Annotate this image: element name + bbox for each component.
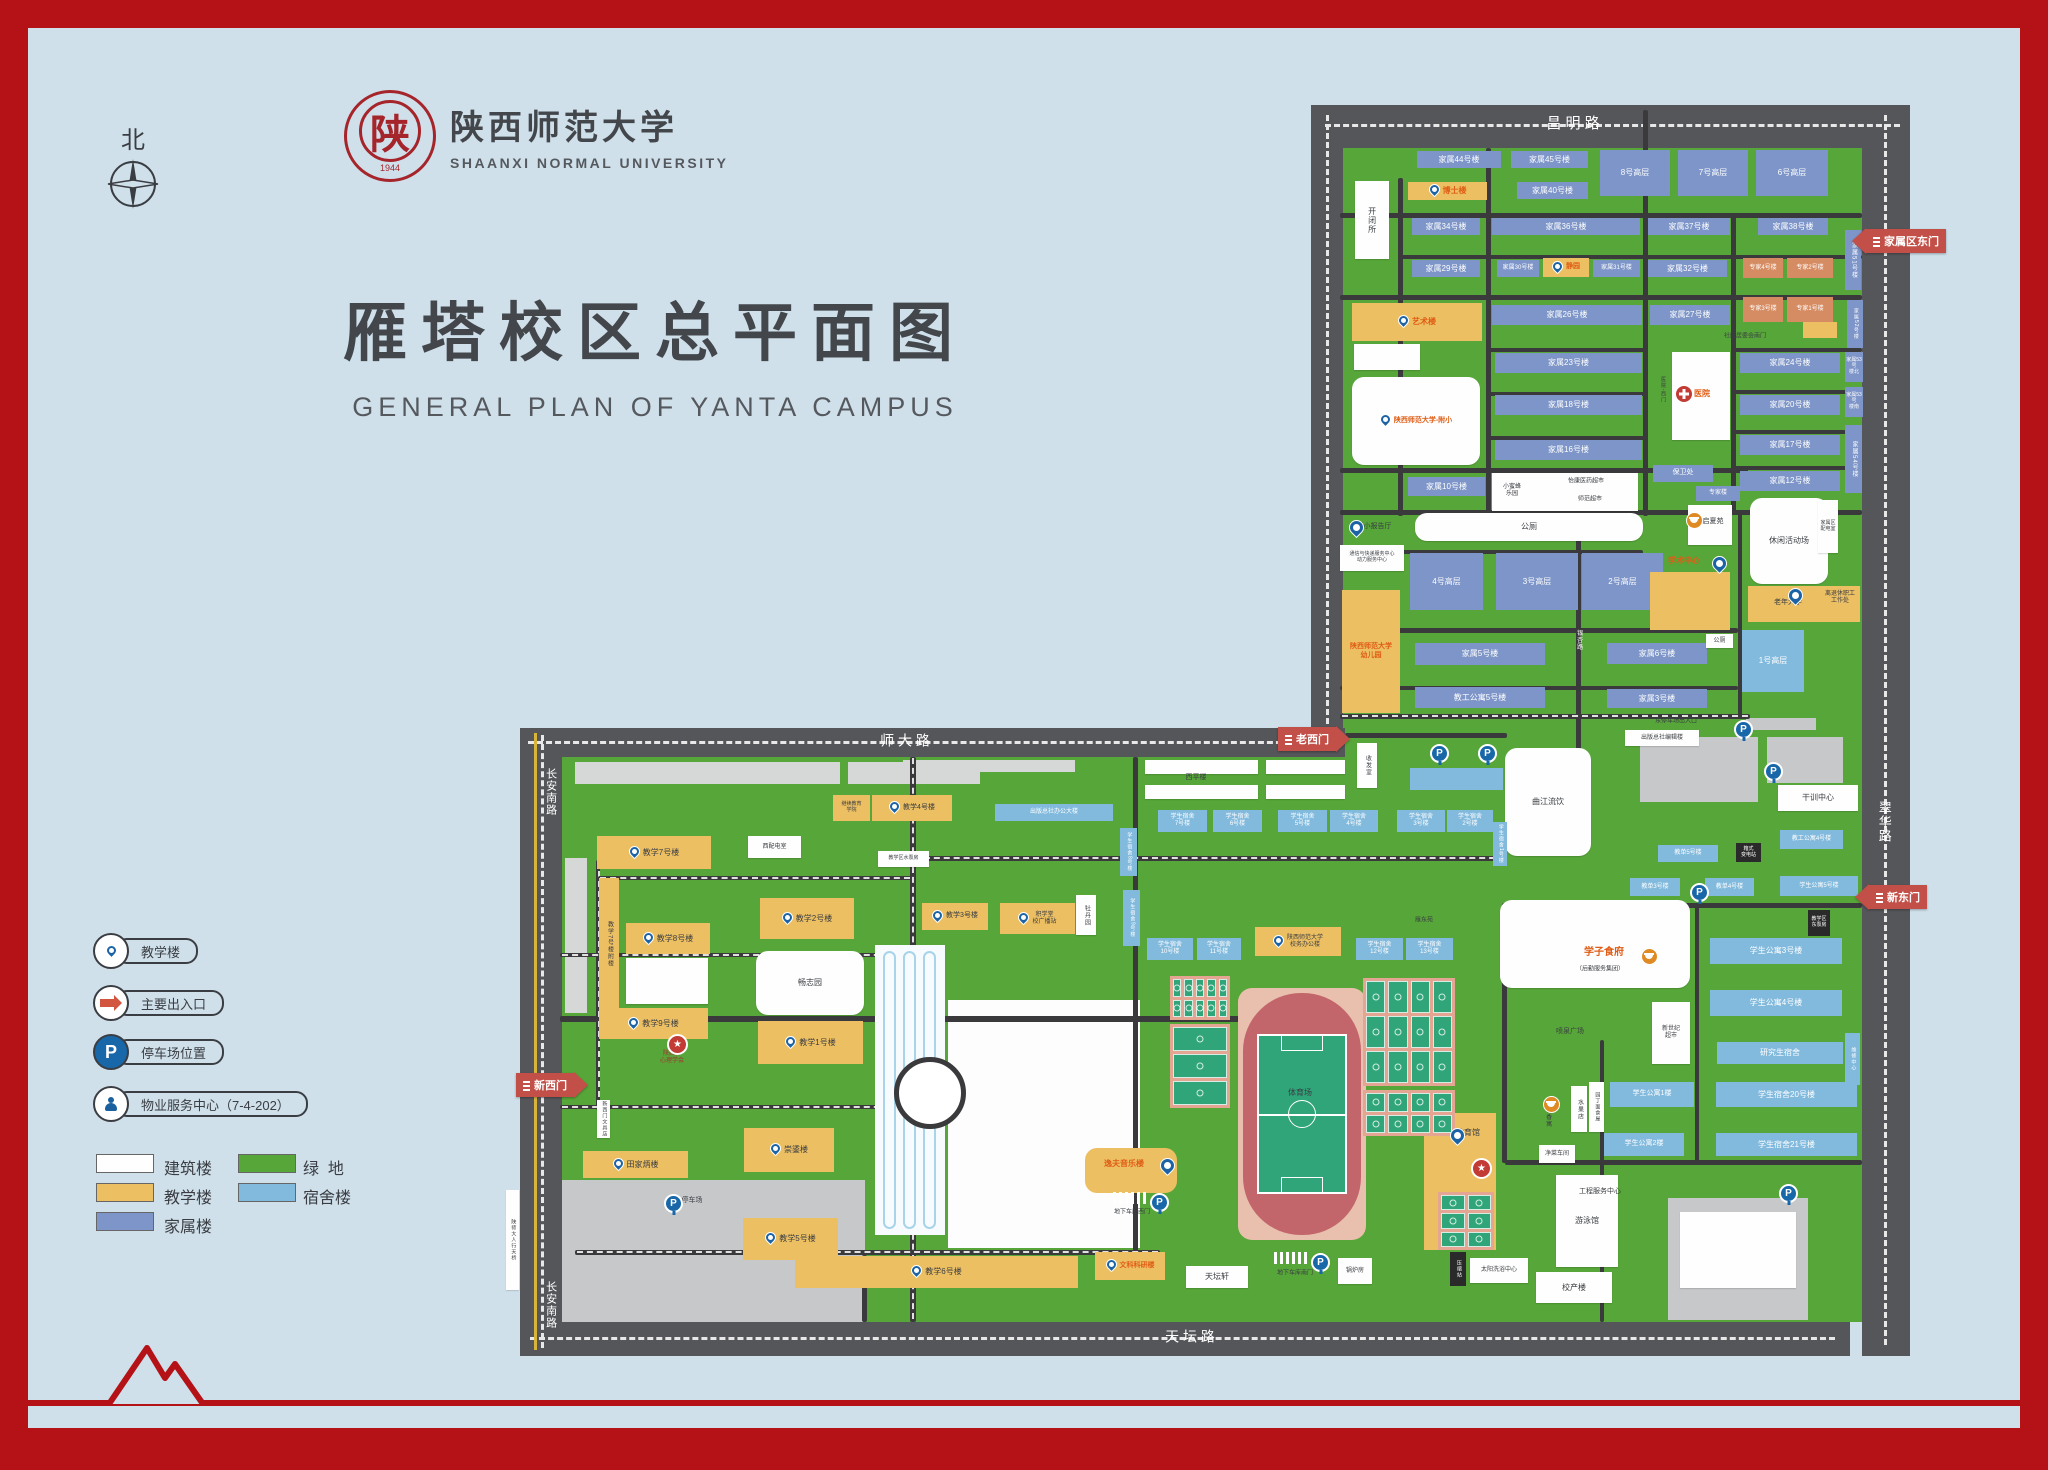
parking-icon: P bbox=[664, 1194, 683, 1213]
gate-icon bbox=[1285, 733, 1292, 745]
building: 园丁面食屋 bbox=[1589, 1082, 1604, 1132]
building: 教学2号楼 bbox=[760, 898, 854, 939]
accent-line bbox=[28, 1400, 2020, 1406]
building: 家属10号楼 bbox=[1408, 477, 1485, 496]
building: 学生宿舍 10号楼 bbox=[1147, 938, 1193, 960]
legend-item-parking: P 停车场位置 bbox=[93, 1034, 224, 1070]
legend-item-label: 主要出入口 bbox=[115, 990, 224, 1016]
building: 压缩站 bbox=[1450, 1252, 1466, 1286]
building: 专家楼 bbox=[1696, 486, 1740, 501]
map-label: 工程服务中心 bbox=[1579, 1188, 1621, 1196]
inner-road-dashes bbox=[577, 1251, 1158, 1253]
location-pin-icon bbox=[626, 843, 642, 859]
legend-item-property: 物业服务中心（7-4-202） bbox=[93, 1086, 308, 1122]
inner-road bbox=[1731, 390, 1862, 394]
building: 文科科研楼 bbox=[1095, 1252, 1165, 1280]
building bbox=[1410, 768, 1503, 790]
building: 教学7号楼附楼 bbox=[599, 878, 619, 1011]
star-badge-icon: ★ bbox=[1471, 1158, 1492, 1179]
road-centerline bbox=[541, 735, 544, 1348]
location-pin-icon bbox=[1103, 1257, 1119, 1273]
map-label: 银杏路 bbox=[1574, 630, 1581, 651]
sports-courts bbox=[1363, 1090, 1455, 1136]
building: 家属54号楼 bbox=[1845, 425, 1862, 493]
university-logo: 陕 1944 陕西师范大学 SHAANXI NORMAL UNIVERSITY bbox=[344, 90, 728, 182]
building: 学生宿舍 13号楼 bbox=[1406, 938, 1453, 960]
location-pin-icon bbox=[763, 1230, 779, 1246]
building: 教学7号楼 bbox=[597, 836, 711, 869]
sports-courts bbox=[1170, 976, 1230, 1020]
building: 7号高层 bbox=[1678, 150, 1748, 196]
building: 家属34号楼 bbox=[1412, 218, 1480, 235]
map-label: 社区居委会南门 bbox=[1724, 333, 1766, 340]
hospital-cross-icon bbox=[1676, 386, 1692, 402]
sidewalk bbox=[903, 760, 1075, 772]
building bbox=[1354, 344, 1420, 370]
building: 家属24号楼 bbox=[1740, 353, 1840, 373]
swatch-label: 宿舍楼 bbox=[303, 1184, 351, 1208]
building: 教学4号楼 bbox=[872, 795, 952, 821]
map-label: 学术中心 bbox=[1668, 556, 1700, 566]
building: 家属12号楼 bbox=[1740, 471, 1840, 491]
location-pin-icon bbox=[610, 1155, 626, 1171]
restaurant-icon bbox=[1641, 948, 1658, 965]
building: 1号高层 bbox=[1742, 630, 1804, 692]
building: 静园 bbox=[1543, 258, 1589, 277]
frame-right bbox=[2020, 0, 2048, 1470]
map-label: 昌 明 路 bbox=[1546, 115, 1599, 133]
building: 出版总社办公大楼 bbox=[995, 804, 1113, 821]
building: 陕师大人行天桥 bbox=[506, 1190, 519, 1290]
location-pin-icon bbox=[887, 799, 903, 815]
building: 家属5号楼 bbox=[1415, 643, 1545, 665]
building: 专家3号楼 bbox=[1743, 297, 1783, 322]
north-compass-icon bbox=[104, 155, 162, 213]
building: 家属53号 楼南 bbox=[1845, 387, 1863, 417]
swatch-building bbox=[96, 1154, 154, 1173]
location-pin-icon bbox=[1378, 412, 1394, 428]
building: 学生宿舍 3号楼 bbox=[1397, 810, 1445, 832]
building: 教工公寓5号楼 bbox=[1415, 687, 1545, 708]
building: 陕西师范大学 校务办公楼 bbox=[1255, 927, 1341, 956]
location-pin-icon bbox=[909, 1263, 925, 1279]
map-label: 雁东苑 bbox=[1415, 917, 1433, 924]
building: 教学1号楼 bbox=[758, 1021, 863, 1064]
building: 家属37号楼 bbox=[1648, 218, 1730, 235]
road-centerline bbox=[1325, 124, 1900, 127]
map-label: 离退休职工 工作处 bbox=[1825, 591, 1855, 605]
building: 教学3号楼 bbox=[922, 903, 988, 930]
parking-icon: P bbox=[1478, 744, 1497, 763]
building: 畅志园 bbox=[756, 951, 864, 1015]
restaurant-icon bbox=[1543, 1096, 1560, 1113]
building: 家属23号楼 bbox=[1495, 353, 1642, 373]
inner-road bbox=[1486, 148, 1491, 516]
map-label: 东停车场出入口 bbox=[1655, 718, 1697, 725]
location-pin-icon bbox=[768, 1141, 784, 1157]
north-label: 北 bbox=[98, 120, 168, 155]
building: 学生宿舍 12号楼 bbox=[1356, 938, 1403, 960]
map-label: 启夏苑 bbox=[1703, 518, 1724, 526]
building: 家属30号楼 bbox=[1497, 260, 1539, 277]
building: 公厕 bbox=[1415, 513, 1643, 541]
campus-map: 开闭所家属44号楼家属45号楼8号高层7号高层6号高层博士楼家属40号楼家属34… bbox=[0, 0, 2048, 1470]
plaza bbox=[948, 1000, 1140, 1248]
map-label: 长安南路 bbox=[543, 768, 556, 816]
building: 教学9号楼 bbox=[599, 1008, 708, 1039]
building: 家属27号楼 bbox=[1650, 305, 1730, 325]
building: 教学区 东泵房 bbox=[1808, 910, 1830, 936]
building: 锅炉房 bbox=[1338, 1258, 1372, 1284]
location-pin-icon bbox=[640, 929, 656, 945]
location-pin-icon bbox=[1426, 182, 1442, 198]
person-icon bbox=[93, 1086, 129, 1122]
seal-character: 陕 bbox=[359, 100, 421, 162]
location-pin-icon bbox=[1271, 932, 1287, 948]
location-pin-icon bbox=[783, 1033, 799, 1049]
building: 学生公寓4号楼 bbox=[1710, 990, 1842, 1016]
building bbox=[1680, 1212, 1796, 1288]
building: 水果店 bbox=[1571, 1086, 1587, 1132]
building: 通信与快递服务中心 动力服务中心 bbox=[1340, 545, 1404, 571]
building: 教学6号楼 bbox=[795, 1256, 1078, 1288]
swatch-dorm bbox=[238, 1183, 296, 1202]
map-label: （后勤服务集团） bbox=[1576, 966, 1624, 973]
building bbox=[626, 958, 708, 1004]
building: 家属20号楼 bbox=[1740, 395, 1840, 415]
building: 学生宿舍 6号楼 bbox=[1213, 810, 1262, 832]
map-label: 停车场 bbox=[682, 1197, 703, 1205]
building: 家属45号楼 bbox=[1511, 151, 1588, 168]
location-pin-icon bbox=[1550, 258, 1566, 274]
parking-icon: P bbox=[1734, 720, 1753, 739]
building: 收发室 bbox=[1357, 743, 1377, 788]
swatch-label: 建筑楼 bbox=[164, 1155, 212, 1179]
building: 家属38号楼 bbox=[1758, 218, 1828, 235]
map-label: 西平楼 bbox=[1186, 774, 1207, 782]
restaurant-icon bbox=[1686, 512, 1703, 529]
building: 学生宿舍 7号楼 bbox=[1158, 810, 1207, 832]
building: 研究生宿舍 bbox=[1717, 1042, 1843, 1064]
gate-arrow: 新西门 bbox=[516, 1072, 588, 1098]
frame-left bbox=[0, 0, 28, 1470]
location-pin-icon bbox=[779, 909, 795, 925]
swatch-teaching bbox=[96, 1183, 154, 1202]
legend-item-label: 停车场位置 bbox=[115, 1039, 224, 1065]
building: 公厕 bbox=[1706, 634, 1733, 648]
building: 新世纪 超市 bbox=[1652, 1002, 1690, 1064]
parking-lot bbox=[1746, 718, 1816, 730]
building: 继续教育 学院 bbox=[833, 795, 870, 821]
parking-lot bbox=[1640, 737, 1758, 802]
inner-road bbox=[1345, 733, 1507, 738]
building: 陕西师范大学-附小 bbox=[1352, 377, 1480, 465]
entrance-arrow-icon bbox=[93, 985, 129, 1021]
sidewalk bbox=[575, 762, 840, 784]
building: 家属26号楼 bbox=[1492, 305, 1642, 325]
building: 保卫处 bbox=[1653, 465, 1713, 482]
building bbox=[1266, 760, 1345, 774]
parking-icon: P bbox=[1311, 1253, 1330, 1272]
sidewalk bbox=[565, 858, 587, 1013]
building: 净菜车间 bbox=[1539, 1145, 1575, 1163]
parking-icon: P bbox=[1764, 762, 1783, 781]
location-pin-icon bbox=[930, 907, 946, 923]
swatch-family bbox=[96, 1212, 154, 1231]
road-centerline bbox=[1884, 115, 1887, 1345]
building: 家属17号楼 bbox=[1740, 435, 1840, 455]
building: 开闭所 bbox=[1355, 181, 1389, 259]
road-centerline bbox=[534, 733, 537, 1350]
building: 家属31号楼 bbox=[1593, 260, 1640, 277]
building: 教学区水泵房 bbox=[878, 851, 929, 867]
location-pin-icon bbox=[626, 1014, 642, 1030]
building: 学生宿舍 11号楼 bbox=[1197, 938, 1241, 960]
building: 3号高层 bbox=[1496, 553, 1578, 610]
parking-icon: P bbox=[1430, 744, 1449, 763]
building: 家属29号楼 bbox=[1412, 260, 1480, 277]
inner-road-dashes bbox=[914, 857, 1505, 859]
legend-item-entrance: 主要出入口 bbox=[93, 985, 224, 1021]
building bbox=[1145, 760, 1258, 774]
map-label: 医院-西门 bbox=[1660, 377, 1666, 404]
inner-road bbox=[1731, 466, 1862, 470]
building: 学生宿舍20号楼 bbox=[1716, 1082, 1857, 1107]
map-label: 体育场 bbox=[1288, 1088, 1312, 1098]
building: 教工公寓4号楼 bbox=[1780, 830, 1843, 849]
building: 家属40号楼 bbox=[1517, 182, 1588, 199]
university-name-en: SHAANXI NORMAL UNIVERSITY bbox=[450, 155, 728, 171]
inner-road-dashes bbox=[562, 1106, 910, 1108]
inner-road-dashes bbox=[1342, 715, 1748, 717]
building: 4号高层 bbox=[1410, 553, 1483, 610]
gate-label: 新东门 bbox=[1887, 889, 1920, 905]
map-label: 学子食府 bbox=[1584, 947, 1624, 959]
building: 学生宿舍8号楼 bbox=[1120, 828, 1137, 876]
seal-year: 1944 bbox=[380, 163, 400, 173]
building: 休闲活动场 bbox=[1750, 498, 1828, 584]
building: 家属6号楼 bbox=[1607, 643, 1707, 664]
building: 田家炳楼 bbox=[583, 1151, 688, 1178]
campus-map-page: 开闭所家属44号楼家属45号楼8号高层7号高层6号高层博士楼家属40号楼家属34… bbox=[0, 0, 2048, 1470]
gate-arrow: 家属区东门 bbox=[1852, 228, 1946, 254]
building bbox=[1266, 785, 1345, 799]
location-pin-icon bbox=[1396, 313, 1412, 329]
page-subtitle: GENERAL PLAN OF YANTA CAMPUS bbox=[330, 392, 980, 423]
building: 积学堂 校广播站 bbox=[1000, 903, 1075, 934]
university-seal-icon: 陕 1944 bbox=[344, 90, 436, 182]
building: 学生宿舍9号楼 bbox=[1123, 890, 1140, 946]
swatch-label: 教学楼 bbox=[164, 1184, 212, 1208]
building: 家属52号楼 bbox=[1847, 300, 1863, 348]
university-name-cn: 陕西师范大学 bbox=[450, 100, 728, 149]
road-centerline bbox=[528, 741, 1336, 744]
building: 家属36号楼 bbox=[1492, 218, 1640, 235]
fountain-plaza bbox=[894, 1057, 966, 1129]
parking-icon: P bbox=[1150, 1193, 1169, 1212]
parking-icon: P bbox=[1779, 1184, 1798, 1203]
map-label: 小蜜蜂 乐园 bbox=[1503, 484, 1521, 498]
stadium bbox=[1238, 988, 1366, 1240]
north-indicator: 北 bbox=[98, 120, 168, 218]
building: 学生宿舍 4号楼 bbox=[1330, 810, 1378, 832]
building: 家属44号楼 bbox=[1417, 151, 1501, 168]
sports-courts bbox=[1363, 978, 1455, 1086]
building: 西配电室 bbox=[748, 836, 801, 858]
map-label: 地下车库南门 bbox=[1277, 1270, 1313, 1277]
sports-courts bbox=[1170, 1024, 1230, 1108]
swatch-label: 绿 地 bbox=[303, 1155, 344, 1179]
gate-label: 家属区东门 bbox=[1884, 233, 1939, 249]
legend-item-teaching: 教学楼 bbox=[93, 933, 198, 969]
map-label: 喷泉广场 bbox=[1556, 1028, 1584, 1036]
gate-arrow: 老西门 bbox=[1278, 726, 1350, 752]
building: 6号高层 bbox=[1756, 150, 1828, 196]
building-pin-icon bbox=[93, 933, 129, 969]
building: 艺术楼 bbox=[1352, 303, 1482, 341]
crosswalk bbox=[1113, 1192, 1149, 1204]
star-icon: ★ bbox=[667, 1034, 688, 1055]
inner-road bbox=[1695, 905, 1699, 1163]
building: 教单5号楼 bbox=[1658, 845, 1718, 862]
building bbox=[1145, 785, 1258, 799]
building: 太阳洗浴中心 bbox=[1470, 1258, 1528, 1283]
building: 学生宿舍 2号楼 bbox=[1447, 810, 1493, 832]
building: 专家1号楼 bbox=[1787, 297, 1833, 322]
map-label: 长安南路 bbox=[543, 1281, 556, 1329]
map-label: 医院 bbox=[1694, 389, 1710, 399]
mountain-deco bbox=[103, 1340, 213, 1406]
building: 家属32号楼 bbox=[1648, 260, 1727, 277]
building: 学生公寓1楼 bbox=[1610, 1082, 1694, 1107]
building: 箱式 变电站 bbox=[1736, 843, 1761, 862]
map-label: 翠华路 bbox=[1876, 801, 1892, 843]
frame-bottom bbox=[0, 1428, 2048, 1470]
building: 8号高层 bbox=[1600, 150, 1670, 196]
map-label: 师 大 路 bbox=[880, 733, 930, 750]
map-label: 师范超市 bbox=[1578, 496, 1602, 503]
crosswalk bbox=[1274, 1252, 1308, 1264]
inner-road bbox=[1340, 295, 1862, 300]
inner-road bbox=[1731, 348, 1862, 352]
gate-label: 新西门 bbox=[534, 1077, 567, 1093]
building: 崇鋈楼 bbox=[744, 1128, 834, 1172]
map-label: 怡康医药超市 bbox=[1568, 478, 1604, 485]
building bbox=[1650, 572, 1730, 630]
legend-item-label: 物业服务中心（7-4-202） bbox=[115, 1091, 308, 1117]
building: 专家4号楼 bbox=[1743, 258, 1783, 278]
building: 学生宿舍21号楼 bbox=[1716, 1133, 1857, 1156]
gate-icon bbox=[1873, 235, 1880, 247]
building: 天坛轩 bbox=[1186, 1266, 1248, 1288]
building: 家属区 配电室 bbox=[1818, 500, 1838, 553]
map-label: 地下车库西门 bbox=[1114, 1209, 1150, 1216]
building: 教单3号楼 bbox=[1630, 878, 1680, 896]
building: 学生公寓5号楼 bbox=[1780, 876, 1858, 896]
building: 教单4号楼 bbox=[1705, 878, 1754, 896]
soccer-field bbox=[1257, 1034, 1347, 1194]
building: 家属3号楼 bbox=[1607, 689, 1707, 708]
building: 专家2号楼 bbox=[1787, 258, 1833, 278]
page-title: 雁塔校区总平面图 bbox=[330, 282, 980, 374]
building: 学生公寓3号楼 bbox=[1710, 938, 1842, 964]
inner-road bbox=[1731, 430, 1862, 434]
building: 干训中心 bbox=[1778, 785, 1858, 811]
swatch-green bbox=[238, 1154, 296, 1173]
frame-top bbox=[0, 0, 2048, 28]
building: 博士楼 bbox=[1408, 182, 1487, 200]
parking-icon: P bbox=[93, 1034, 129, 1070]
building: 维修中心 bbox=[1845, 1033, 1860, 1085]
gate-arrow: 新东门 bbox=[1855, 884, 1927, 910]
building: 学生宿舍 5号楼 bbox=[1278, 810, 1327, 832]
building bbox=[1803, 322, 1837, 338]
building: 教学5号楼 bbox=[743, 1218, 838, 1260]
road-centerline bbox=[1326, 115, 1329, 733]
sports-courts bbox=[1438, 1192, 1494, 1250]
gate-icon bbox=[1876, 891, 1883, 903]
building: 新西门文具店 bbox=[597, 1100, 610, 1138]
building: 牡丹园 bbox=[1076, 895, 1096, 935]
building: 曲江流饮 bbox=[1505, 748, 1591, 856]
swatch-label: 家属楼 bbox=[164, 1213, 212, 1237]
building: 家属16号楼 bbox=[1495, 440, 1642, 460]
building: 学生宿舍1号楼 bbox=[1493, 822, 1507, 866]
gate-icon bbox=[523, 1079, 530, 1091]
map-label: 天 坛 路 bbox=[1165, 1329, 1215, 1346]
gate-label: 老西门 bbox=[1296, 731, 1329, 747]
building: 学生公寓2楼 bbox=[1604, 1133, 1684, 1156]
building bbox=[1500, 900, 1690, 988]
parking-icon: P bbox=[1690, 883, 1709, 902]
building: 校产楼 bbox=[1536, 1272, 1612, 1303]
inner-road bbox=[1486, 348, 1648, 352]
map-label: 逸夫音乐楼 bbox=[1104, 1159, 1144, 1169]
location-pin-icon bbox=[1016, 909, 1032, 925]
building: 陕西师范大学 幼儿园 bbox=[1342, 590, 1400, 713]
building: 家属53号 楼北 bbox=[1845, 352, 1863, 382]
building: 家属18号楼 bbox=[1495, 395, 1642, 415]
inner-road-dashes bbox=[600, 877, 910, 879]
building: 教学8号楼 bbox=[626, 923, 710, 954]
building: 出版总社编辑楼 bbox=[1625, 730, 1699, 746]
